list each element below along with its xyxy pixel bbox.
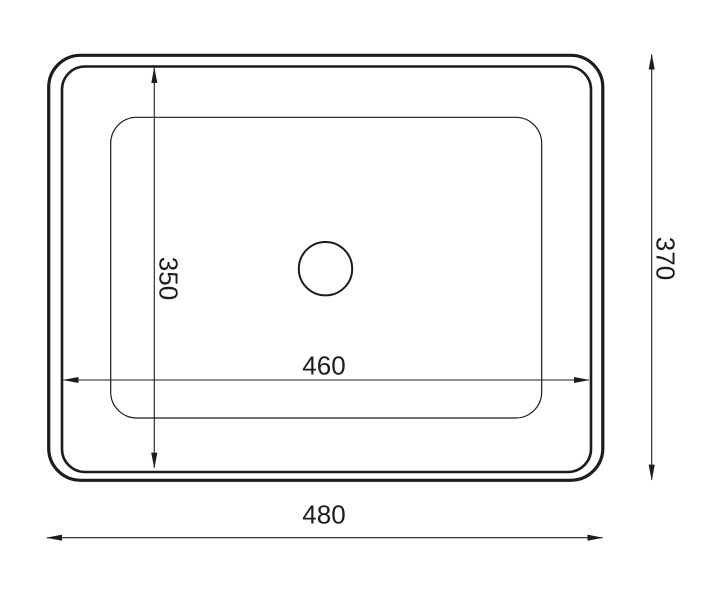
technical-drawing-canvas: 460 350 480 370	[0, 0, 720, 590]
drain-hole-circle	[299, 242, 352, 295]
basin-top-view-drawing: 460 350 480 370	[0, 0, 720, 590]
dim-label-inner-height: 350	[154, 257, 184, 300]
outer-rim-outline	[49, 55, 603, 480]
dim-label-overall-width: 480	[302, 500, 345, 530]
dim-label-inner-width: 460	[302, 351, 345, 381]
inner-rim-outline	[62, 67, 591, 473]
dim-label-overall-height: 370	[651, 237, 681, 280]
